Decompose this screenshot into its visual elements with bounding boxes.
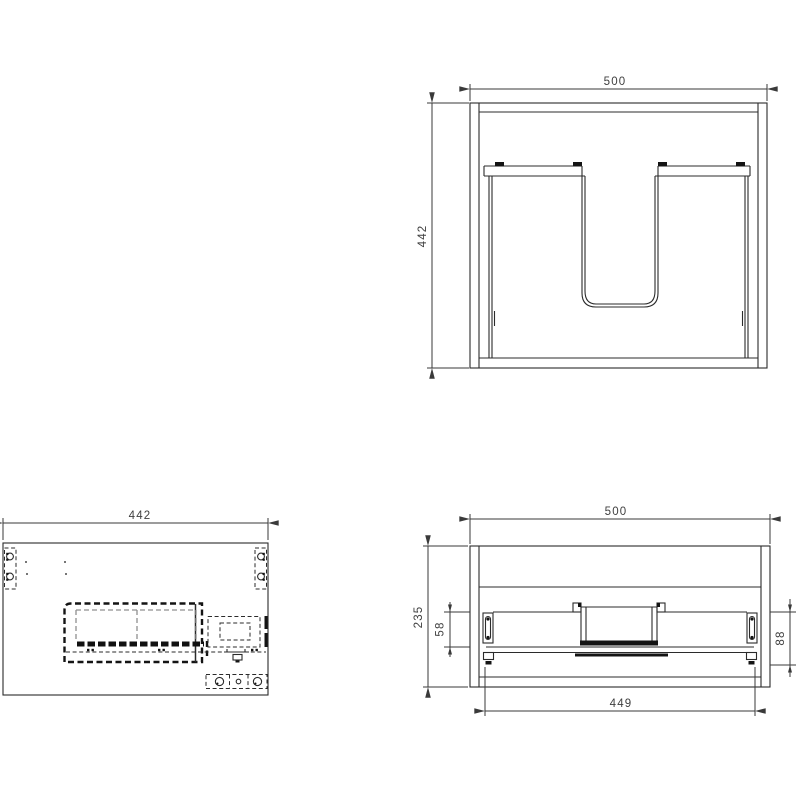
dim-front-width: 500 <box>470 506 770 544</box>
screw-holes <box>25 561 67 575</box>
fixing-tab <box>736 162 745 167</box>
front-cabinet-outline <box>470 546 770 687</box>
technical-drawing-page: 500 442 <box>0 0 800 800</box>
fixing-tab <box>658 162 667 167</box>
dim-front-height: 235 <box>413 546 468 687</box>
drawer-hidden-outline <box>65 604 267 663</box>
dim-label-back-width: 500 <box>604 76 627 88</box>
dim-label-side-depth: 442 <box>129 510 152 522</box>
back-panel-view: 500 442 <box>417 76 767 368</box>
fitting-holes-detail <box>206 675 267 689</box>
dim-side-depth: 442 <box>3 510 268 540</box>
drawer-box-back <box>484 162 750 358</box>
fixing-tab <box>573 162 582 167</box>
side-view: 442 <box>3 510 268 695</box>
cabinet-outline <box>470 103 767 368</box>
hanging-bracket-right <box>255 548 267 589</box>
drawer-bottom-rail <box>486 647 754 657</box>
dim-label-front-width: 500 <box>605 506 628 518</box>
dim-slide-bottom-offset: 88 <box>770 599 796 677</box>
dim-back-height: 442 <box>417 103 469 368</box>
front-view: 500 235 58 88 449 <box>413 506 796 716</box>
side-panel-outline <box>3 543 268 695</box>
fixing-tab <box>495 162 504 167</box>
drain-recess-front <box>573 603 665 646</box>
dim-back-width: 500 <box>470 76 767 101</box>
dim-slide-top-offset: 58 <box>435 602 471 657</box>
drain-recess-hidden <box>208 616 268 647</box>
technical-drawing-canvas: 500 442 <box>0 0 800 800</box>
hanging-bracket-left <box>5 548 17 589</box>
dim-inner-width: 449 <box>485 667 755 716</box>
drawer-slide-right <box>747 613 758 665</box>
drawer-slide-left <box>483 613 494 665</box>
slide-clip-detail <box>224 649 249 663</box>
dim-label-slide-bottom-offset: 88 <box>775 630 787 645</box>
plumbing-u-cutout <box>582 166 658 307</box>
dim-label-back-height: 442 <box>417 225 429 248</box>
dim-label-inner-width: 449 <box>610 698 633 710</box>
dim-label-slide-top-offset: 58 <box>435 621 447 636</box>
dim-label-front-height: 235 <box>413 606 425 629</box>
